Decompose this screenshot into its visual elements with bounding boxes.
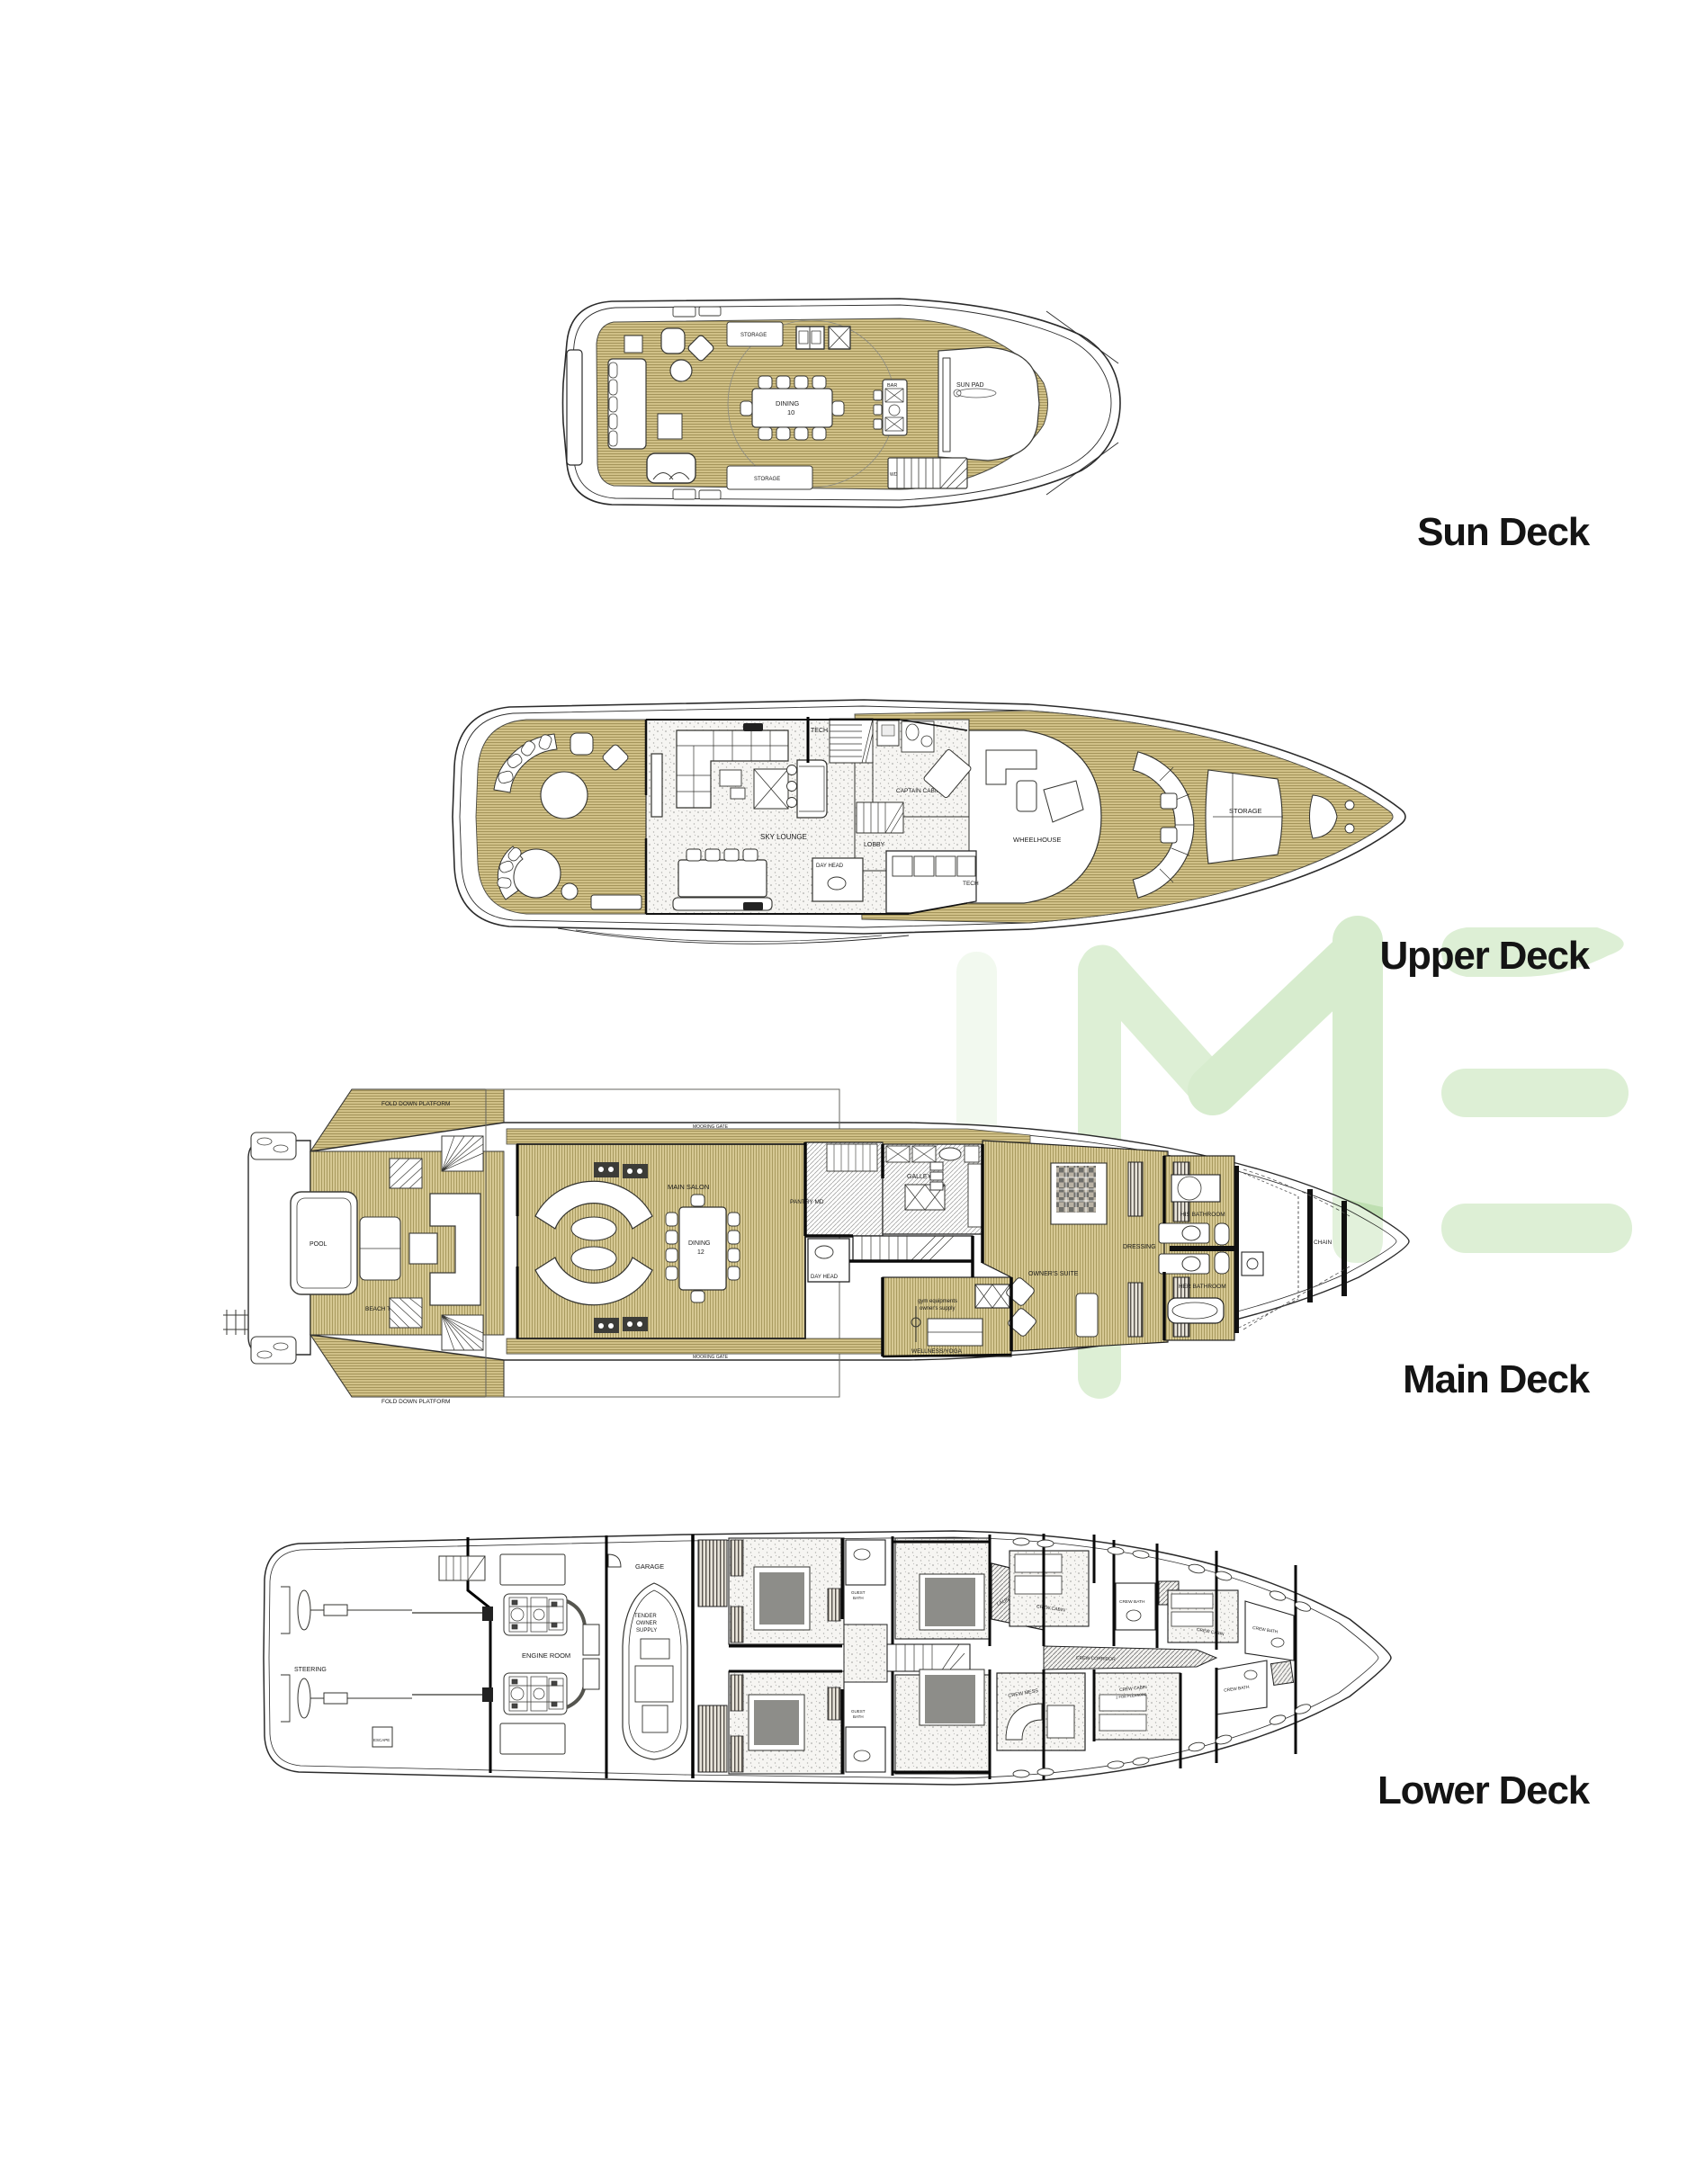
svg-text:WHEELHOUSE: WHEELHOUSE [1013,836,1061,844]
svg-text:12: 12 [697,1249,704,1256]
svg-text:DAY HEAD: DAY HEAD [811,1275,839,1280]
svg-text:Sun Deck: Sun Deck [1417,510,1591,554]
svg-text:TENDER: TENDER [634,1614,657,1619]
svg-text:POOL: POOL [310,1241,328,1248]
svg-text:BATH: BATH [853,1714,864,1719]
svg-text:FOLD DOWN PLATFORM: FOLD DOWN PLATFORM [381,1399,450,1405]
svg-text:Main Deck: Main Deck [1403,1357,1591,1401]
svg-text:STEERING: STEERING [294,1667,327,1673]
svg-text:SUN PAD: SUN PAD [956,382,984,389]
svg-text:DINING: DINING [688,1240,711,1247]
svg-text:DAY HEAD: DAY HEAD [816,864,844,869]
svg-text:GARAGE: GARAGE [635,1562,664,1571]
svg-text:ESCAPE: ESCAPE [373,1738,390,1742]
svg-text:STORAGE: STORAGE [740,333,767,338]
svg-text:BAR: BAR [887,383,897,389]
svg-text:STORAGE: STORAGE [1229,807,1262,815]
svg-text:GALLEY: GALLEY [907,1174,932,1180]
svg-text:SKY LOUNGE: SKY LOUNGE [760,833,807,841]
svg-text:owner's supply: owner's supply [920,1306,956,1311]
svg-text:HIS BATHROOM: HIS BATHROOM [1180,1212,1225,1218]
svg-text:GUEST: GUEST [851,1709,866,1714]
svg-text:CHAIN: CHAIN [1314,1240,1333,1246]
svg-text:SUPPLY: SUPPLY [636,1628,657,1634]
svg-text:PANTRY MD: PANTRY MD [790,1199,824,1205]
svg-text:HER BATHROOM: HER BATHROOM [1179,1284,1226,1290]
svg-text:10: 10 [787,408,794,416]
svg-text:gym equipments: gym equipments [918,1299,957,1304]
svg-text:STORAGE: STORAGE [754,477,780,482]
svg-text:OWNER'S SUITE: OWNER'S SUITE [1028,1271,1079,1277]
svg-text:GUEST: GUEST [851,1590,866,1595]
svg-text:WELLNESS/YOGA: WELLNESS/YOGA [911,1348,963,1355]
svg-text:LOBBY: LOBBY [864,842,885,848]
svg-text:MOORING GATE: MOORING GATE [693,1124,729,1130]
svg-text:TECH: TECH [963,881,979,887]
svg-text:ENGINE ROOM: ENGINE ROOM [522,1651,570,1660]
svg-text:Upper Deck: Upper Deck [1379,934,1590,978]
svg-text:CAPTAIN CABIN: CAPTAIN CABIN [896,788,941,794]
svg-text:TECH: TECH [811,728,828,734]
svg-text:MOORING GATE: MOORING GATE [693,1355,729,1360]
svg-text:CREW BATH: CREW BATH [1119,1599,1145,1605]
svg-text:DINING: DINING [776,399,799,407]
svg-text:Lower Deck: Lower Deck [1377,1768,1591,1813]
svg-text:OWNER: OWNER [636,1621,658,1626]
svg-text:FOLD DOWN PLATFORM: FOLD DOWN PLATFORM [381,1101,450,1107]
svg-text:DRESSING: DRESSING [1123,1244,1156,1250]
svg-text:MAIN SALON: MAIN SALON [668,1183,709,1191]
svg-text:BATH: BATH [853,1596,864,1600]
svg-text:WD: WD [890,472,898,478]
